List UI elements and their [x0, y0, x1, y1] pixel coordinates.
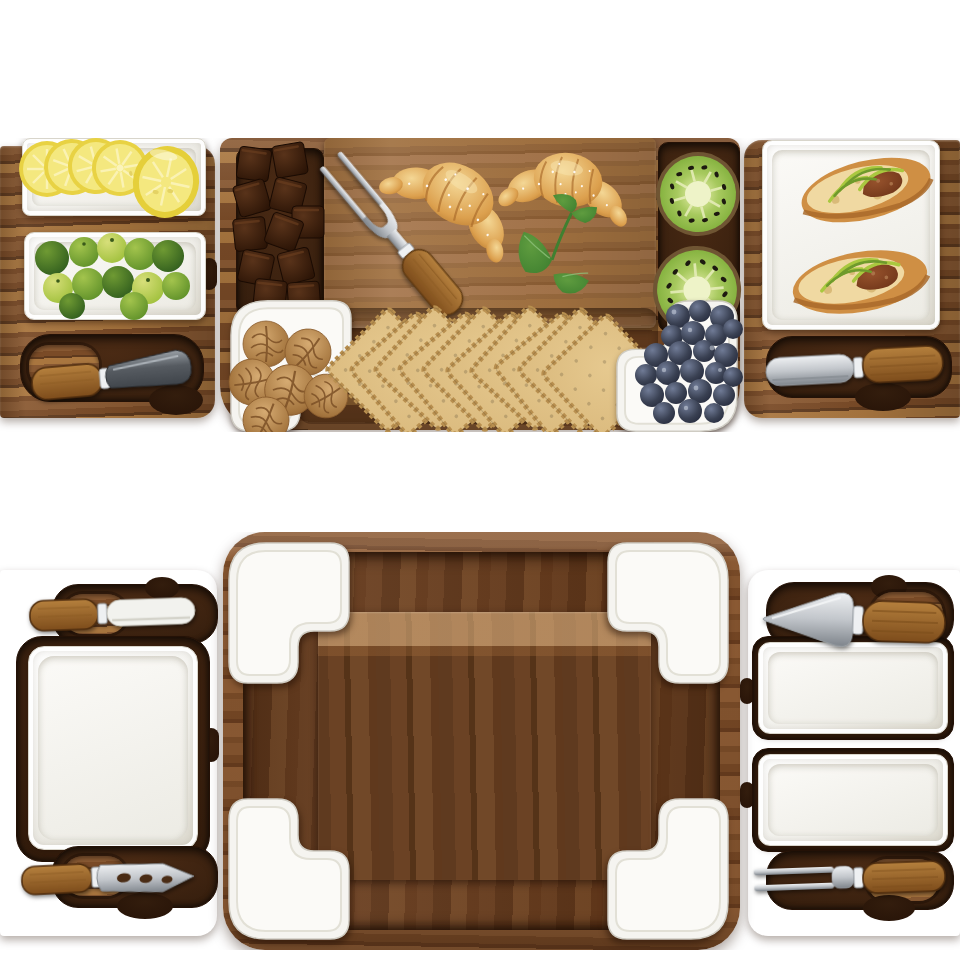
knife-slot-left [20, 334, 204, 402]
handle-recess-pad [63, 594, 127, 634]
raised-cutting-board [324, 138, 656, 328]
rect-dish [758, 754, 948, 846]
main-board [223, 532, 740, 950]
finger-notch [149, 385, 203, 415]
lemon-dish [22, 138, 206, 216]
knife-slot [52, 846, 218, 908]
cracker-channel [298, 308, 658, 424]
spreader-slot [52, 584, 218, 644]
photo-empty-board [0, 532, 960, 950]
photo-loaded-board [0, 138, 960, 432]
chocolate-channel [236, 148, 324, 316]
slot-bump [145, 577, 179, 599]
knife-slot-right [766, 336, 952, 398]
finger-notch [855, 383, 911, 411]
lime-dish [24, 232, 206, 320]
finger-notch [863, 895, 915, 921]
center-cutting-area [318, 612, 651, 880]
product-collage [0, 0, 960, 960]
handle-recess-pad [867, 859, 939, 901]
handle-recess-pad [29, 345, 99, 389]
serving-plate [762, 140, 940, 330]
fork-slot [766, 850, 954, 910]
finger-notch [117, 893, 173, 919]
kiwi-channel [658, 142, 740, 332]
handle-recess-pad [63, 856, 127, 896]
handle-recess-pad [871, 592, 943, 638]
rect-dish [758, 642, 948, 734]
square-plate [28, 646, 198, 850]
